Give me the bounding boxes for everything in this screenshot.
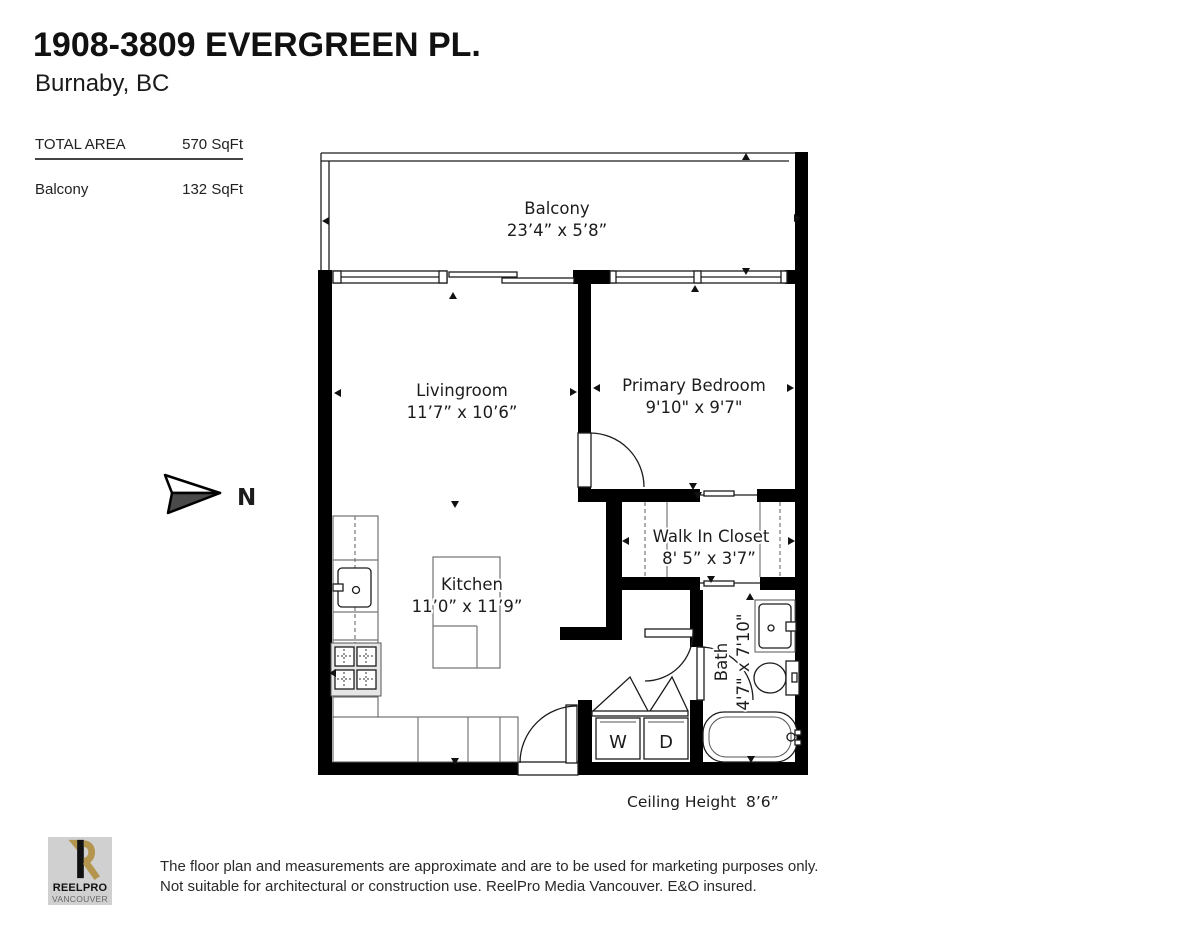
kitchen-dims: 11’0” x 11’9” — [412, 597, 523, 616]
balcony-area-label: Balcony — [35, 181, 88, 198]
kitchen-label: Kitchen — [441, 575, 503, 594]
balcony-dims: 23’4” x 5’8” — [507, 221, 607, 240]
stove — [331, 643, 381, 696]
total-area-label: TOTAL AREA — [35, 136, 126, 153]
kitchen-counter-bottom — [333, 717, 518, 762]
dryer-label: D — [659, 732, 673, 753]
page-subtitle: Burnaby, BC — [35, 70, 169, 98]
bedroom-door — [578, 433, 644, 487]
floorplan-page: 1908-3809 EVERGREEN PL. Burnaby, BC TOTA… — [0, 0, 1200, 927]
reelpro-logo: REELPRO VANCOUVER — [48, 837, 112, 905]
disclaimer-text: The floor plan and measurements are appr… — [160, 857, 818, 897]
bathtub — [703, 712, 801, 762]
primary-bedroom-dims: 9'10" x 9'7" — [646, 398, 743, 417]
logo-name: REELPRO — [53, 882, 108, 894]
disclaimer-line-2: Not suitable for architectural or constr… — [160, 877, 818, 897]
laundry-bifold-doors — [593, 677, 688, 711]
north-arrow-icon: N — [165, 475, 256, 513]
toilet — [754, 661, 799, 695]
north-label: N — [237, 485, 256, 511]
bedroom-window — [610, 271, 787, 283]
washer-label: W — [609, 732, 627, 753]
reelpro-r-icon — [58, 837, 102, 881]
bath-label: Bath — [712, 643, 731, 681]
livingroom-dims: 11’7” x 10’6” — [407, 403, 518, 422]
ceiling-height-value: 8’6” — [746, 793, 779, 811]
floorplan-drawing: N — [140, 140, 830, 820]
walk-in-closet-dims: 8' 5” x 3'7” — [662, 549, 756, 568]
washer-dryer: W D — [592, 711, 688, 759]
livingroom-window — [333, 271, 447, 283]
walk-in-closet-label: Walk In Closet — [653, 527, 770, 546]
hall-door — [645, 629, 693, 681]
page-title: 1908-3809 EVERGREEN PL. — [33, 26, 481, 65]
balcony-label: Balcony — [524, 199, 590, 218]
disclaimer-line-1: The floor plan and measurements are appr… — [160, 857, 818, 877]
logo-city: VANCOUVER — [52, 894, 108, 904]
sliding-door — [449, 272, 574, 283]
entry-door — [518, 705, 578, 775]
livingroom-label: Livingroom — [416, 381, 508, 400]
ceiling-height-label: Ceiling Height — [627, 793, 736, 811]
bath-dims: 4'7" x 7'10" — [734, 614, 753, 711]
kitchen-sink — [333, 568, 371, 607]
bath-sink — [755, 600, 796, 652]
primary-bedroom-label: Primary Bedroom — [622, 376, 766, 395]
